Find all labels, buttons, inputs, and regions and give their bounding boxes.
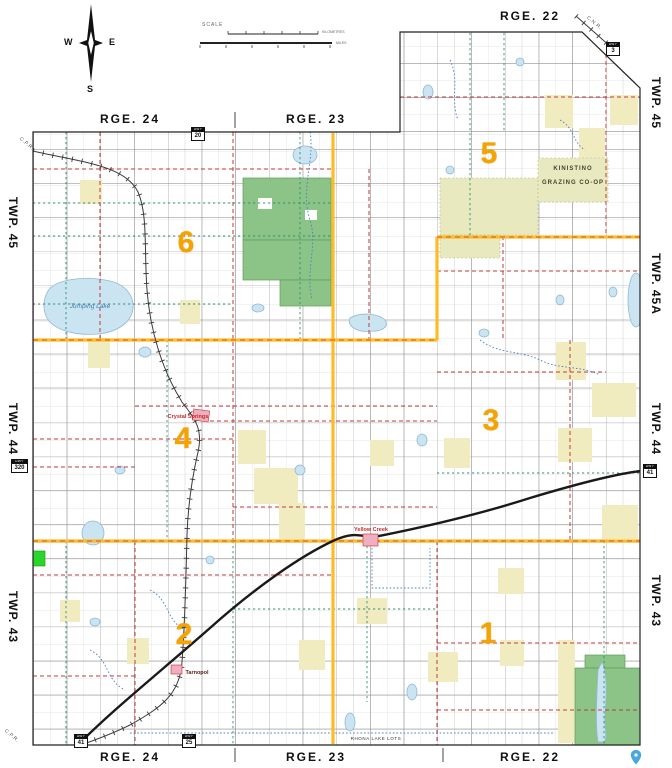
division-number-2: 2	[164, 618, 204, 652]
compass-rose	[79, 4, 103, 82]
highway-41-shield-east: HWY 41	[643, 464, 657, 478]
highway-41-shield-south: HWY 41	[74, 734, 88, 748]
rhona-lake-lots-label: RHONA LAKE LOTS	[331, 736, 421, 741]
scale-label: SCALE	[202, 22, 223, 28]
highway-3-shield: HWY 3	[606, 42, 620, 56]
division-number-3: 3	[471, 404, 511, 438]
range-label-24-top: RGE. 24	[75, 112, 185, 126]
township-label-45a-right: TWP. 45A	[649, 249, 663, 319]
jumping-lake-label: Jumping Lake	[50, 303, 130, 310]
range-label-24-bottom: RGE. 24	[75, 750, 185, 764]
yellow-creek-label: Yellow Creek	[336, 527, 406, 533]
township-label-43-right: TWP. 43	[649, 566, 663, 636]
division-number-4: 4	[163, 422, 203, 456]
township-label-45-right: TWP. 45	[649, 68, 663, 138]
highway-25-shield: HWY 25	[182, 734, 196, 748]
township-label-44-right: TWP. 44	[649, 394, 663, 464]
township-label-44-left: TWP. 44	[6, 394, 20, 464]
division-number-5: 5	[469, 137, 509, 171]
range-label-23-bottom: RGE. 23	[261, 750, 371, 764]
compass-south: S	[87, 84, 93, 94]
range-label-23-top: RGE. 23	[261, 112, 371, 126]
township-label-45-left: TWP. 45	[6, 188, 20, 258]
scale-bar-rules	[200, 31, 332, 48]
range-label-22-bottom: RGE. 22	[475, 750, 585, 764]
township-label-43-left: TWP. 43	[6, 582, 20, 652]
compass-east: E	[109, 37, 115, 47]
division-number-1: 1	[468, 617, 508, 651]
scale-miles-label: MILES	[336, 41, 347, 45]
tarnopol-label: Tarnopol	[162, 670, 232, 676]
range-label-22-top: RGE. 22	[475, 9, 585, 23]
scale-km-label: KILOMETRES	[322, 30, 345, 34]
highway-20-shield: HWY 20	[191, 127, 205, 141]
kinistino-coop-label-2: GRAZING CO-OP	[523, 180, 623, 186]
highway-320-shield: HWY 320	[11, 459, 28, 473]
range-ticks	[235, 112, 443, 762]
municipal-plat-map-page: W E S SCALE KILOMETRES MILES RGE. 22 RGE…	[0, 0, 672, 768]
location-pin-icon	[631, 750, 641, 765]
rm-boundary	[33, 32, 640, 745]
division-number-6: 6	[166, 226, 206, 260]
crystal-springs-label: Crystal Springs	[153, 414, 223, 420]
compass-west: W	[64, 37, 73, 47]
kinistino-coop-label-1: KINISTINO	[523, 166, 623, 172]
